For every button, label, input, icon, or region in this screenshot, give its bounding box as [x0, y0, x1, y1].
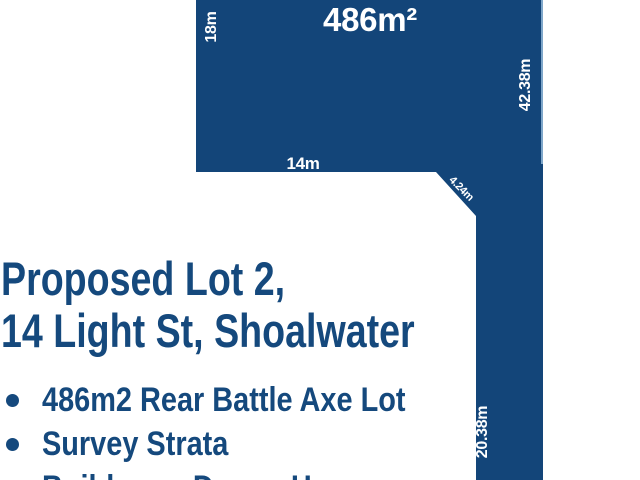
feature-list: 486m2 Rear Battle Axe Lot Survey Strata … — [6, 378, 636, 480]
listing-title: Proposed Lot 2, 14 Light St, Shoalwater — [1, 253, 518, 357]
lot-area-label: 486m² — [323, 1, 417, 38]
listing-title-line1: Proposed Lot 2, — [1, 253, 415, 305]
dim-left-label: 18m — [203, 11, 220, 42]
dim-right-label: 42.38m — [517, 59, 534, 112]
bullet-dot — [6, 438, 19, 451]
feature-item-label: Survey Strata — [42, 427, 228, 461]
feature-item-label: 486m2 Rear Battle Axe Lot — [42, 383, 406, 417]
feature-item-label: Build your Dream Home — [42, 471, 371, 480]
feature-item: Survey Strata — [6, 422, 636, 466]
dim-bottom-label: 14m — [286, 154, 319, 173]
feature-item: 486m2 Rear Battle Axe Lot — [6, 378, 636, 422]
bullet-dot — [6, 394, 19, 407]
feature-item: Build your Dream Home — [6, 466, 636, 480]
listing-title-line2: 14 Light St, Shoalwater — [1, 305, 415, 357]
flyer-canvas: 486m² 18m 14m 4.24m 42.38m 20.38m Propos… — [0, 0, 640, 480]
